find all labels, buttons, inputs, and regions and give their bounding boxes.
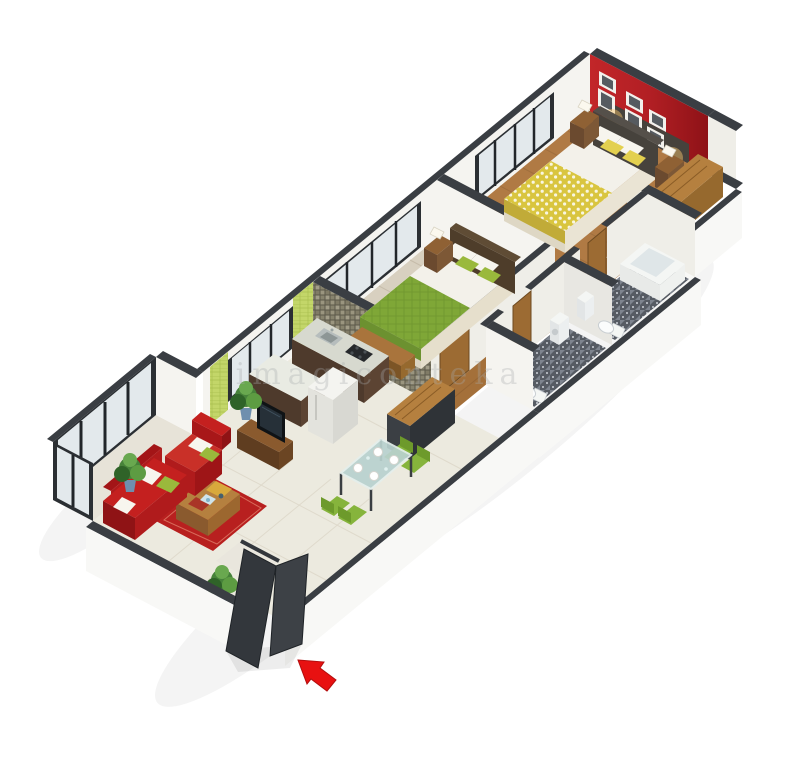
entrance-arrow <box>298 660 336 691</box>
floor-plan-image: red feature wall with six picture frames <box>0 0 800 762</box>
plate <box>370 472 379 481</box>
watermark-text: imagiconteka <box>236 357 525 392</box>
plate <box>354 464 363 473</box>
plate <box>374 448 383 457</box>
entrance-door-leaf <box>270 554 308 656</box>
floor-plan-canvas: red feature wall with six picture frames <box>0 0 800 762</box>
plate <box>390 456 399 465</box>
